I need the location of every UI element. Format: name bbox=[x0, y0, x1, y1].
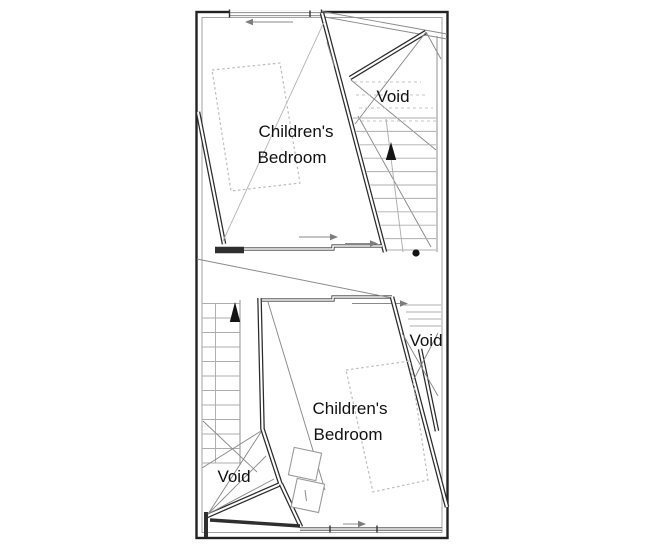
outer-boundary-wall bbox=[197, 12, 448, 538]
sliding-door-arrow-icon bbox=[352, 300, 408, 306]
void-top-partition-wall bbox=[350, 32, 426, 78]
roof-edge-band bbox=[322, 12, 447, 40]
door-unit bbox=[288, 447, 324, 512]
sliding-door-arrow-icon bbox=[299, 234, 338, 240]
sliding-door-arrow-icon bbox=[343, 521, 366, 527]
room-label-bedroom-top-line2: Bedroom bbox=[258, 148, 327, 167]
floor-plan-drawing: Children's Bedroom Void Children's Bedro… bbox=[0, 0, 646, 549]
corridor-bottom-wall bbox=[262, 297, 392, 300]
floor-plan-canvas: Children's Bedroom Void Children's Bedro… bbox=[0, 0, 646, 549]
room-label-bedroom-top-line1: Children's bbox=[258, 122, 333, 141]
room-label-bedroom-bottom-line2: Bedroom bbox=[314, 425, 383, 444]
corridor-diagonal-line bbox=[197, 259, 392, 298]
sliding-window-arrow-icon bbox=[245, 19, 293, 25]
bedroom-bottom-wall bbox=[300, 526, 442, 533]
corridor-top-wall bbox=[244, 246, 382, 249]
void-top-right-area bbox=[351, 32, 441, 247]
staircase-bottom-left bbox=[202, 300, 241, 465]
void-label-bottom-left: Void bbox=[217, 467, 250, 486]
room-label-bedroom-bottom-line1: Children's bbox=[312, 399, 387, 418]
column-point-marker bbox=[412, 249, 419, 256]
void-label-top-right: Void bbox=[376, 87, 409, 106]
stair-up-arrow-icon bbox=[230, 302, 240, 322]
void-label-mid-right: Void bbox=[409, 331, 442, 350]
bedroom-bottom-right-wall bbox=[392, 297, 447, 507]
